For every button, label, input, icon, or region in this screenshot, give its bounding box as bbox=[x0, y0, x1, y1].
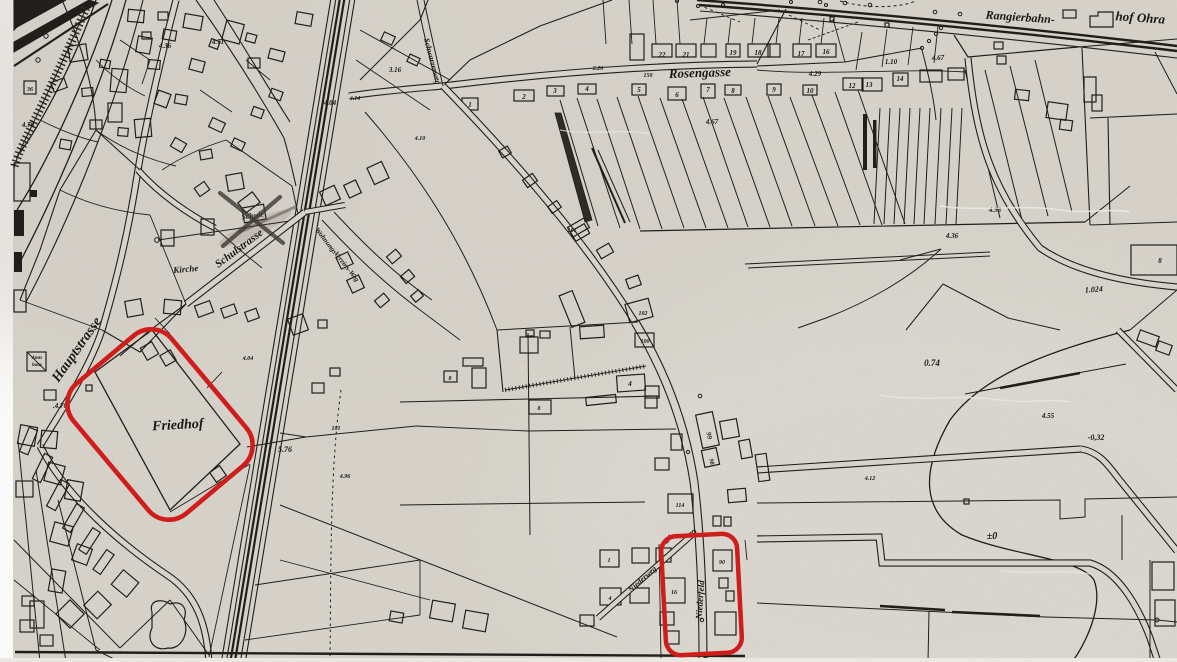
svg-text:4.96: 4.96 bbox=[339, 474, 351, 480]
svg-text:101: 101 bbox=[332, 426, 341, 432]
svg-text:4.14: 4.14 bbox=[349, 96, 361, 102]
svg-text:4.10: 4.10 bbox=[414, 136, 426, 142]
svg-text:4.04: 4.04 bbox=[242, 356, 254, 362]
svg-text:2.26: 2.26 bbox=[592, 66, 604, 72]
